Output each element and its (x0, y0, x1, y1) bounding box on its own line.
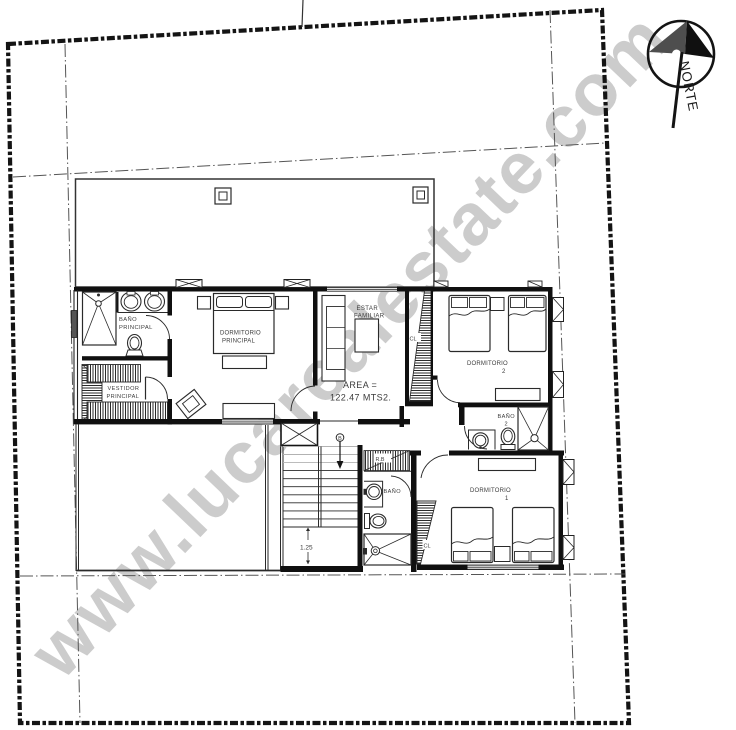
svg-text:CL: CL (410, 337, 417, 343)
svg-text:122.47 MTS2.: 122.47 MTS2. (330, 393, 391, 403)
svg-text:DORMITORIO: DORMITORIO (470, 488, 511, 494)
svg-text:B: B (338, 436, 342, 442)
svg-text:BAÑO: BAÑO (119, 316, 137, 323)
svg-text:R.B: R.B (376, 457, 385, 463)
svg-text:CL: CL (424, 544, 431, 550)
svg-text:1.25: 1.25 (300, 545, 313, 552)
svg-text:PRINCIPAL: PRINCIPAL (222, 339, 255, 345)
svg-text:BAÑO: BAÑO (384, 488, 402, 495)
svg-text:FAMILIAR: FAMILIAR (354, 314, 385, 320)
svg-text:BAÑO: BAÑO (498, 413, 516, 420)
svg-text:PRINCIPAL: PRINCIPAL (107, 394, 140, 400)
svg-text:PRINCIPAL: PRINCIPAL (119, 325, 153, 331)
svg-text:ESTAR: ESTAR (357, 306, 379, 312)
svg-text:DORMITORIO: DORMITORIO (467, 361, 508, 367)
svg-text:VESTIDOR: VESTIDOR (108, 386, 140, 392)
svg-text:2: 2 (505, 422, 508, 428)
svg-text:AREA =: AREA = (343, 380, 377, 390)
svg-text:DORMITORIO: DORMITORIO (220, 331, 261, 337)
